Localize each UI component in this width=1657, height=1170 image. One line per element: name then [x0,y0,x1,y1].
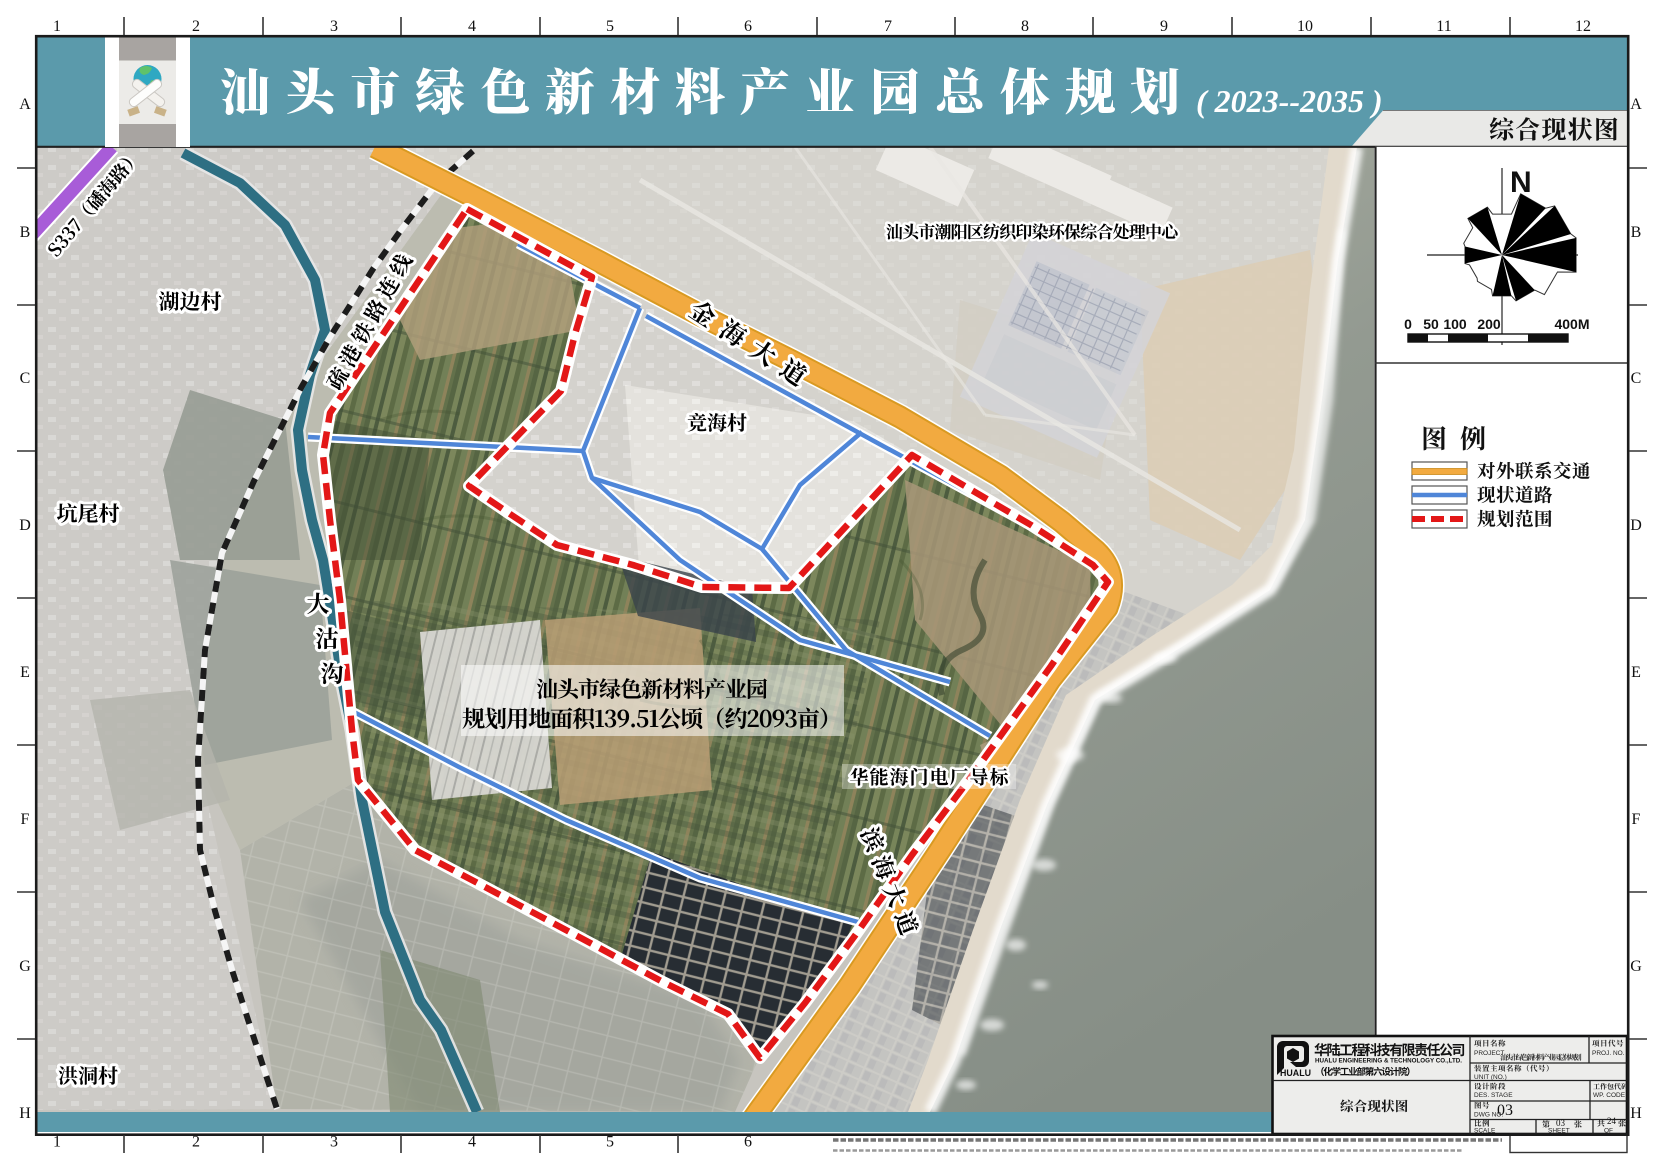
svg-text:4: 4 [468,1134,476,1151]
svg-text:200: 200 [1477,316,1501,332]
svg-text:12: 12 [1575,18,1591,35]
svg-text:4: 4 [468,18,476,35]
svg-text:3: 3 [330,1134,338,1151]
svg-text:3: 3 [330,18,338,35]
svg-text:2: 2 [192,1134,200,1151]
svg-text:100: 100 [1443,316,1467,332]
svg-text:WP. CODE: WP. CODE [1593,1092,1626,1099]
svg-text:11: 11 [1436,18,1451,35]
svg-text:G: G [19,958,31,975]
svg-text:5: 5 [606,18,614,35]
svg-text:N: N [1510,166,1532,199]
svg-text:B: B [20,224,31,241]
svg-text:10: 10 [1297,18,1313,35]
svg-text:( 2023--2035 ): ( 2023--2035 ) [1196,83,1383,119]
svg-text:HUALU: HUALU [1280,1068,1311,1079]
svg-text:UNIT (NO.): UNIT (NO.) [1474,1074,1507,1081]
svg-text:8: 8 [1021,18,1029,35]
svg-text:400M: 400M [1554,316,1589,332]
svg-text:F: F [1632,811,1641,828]
svg-text:2: 2 [192,18,200,35]
svg-text:A: A [19,96,31,113]
svg-text:24: 24 [1607,1116,1617,1126]
svg-text:HUALU ENGINEERING & TECHNOLOGY: HUALU ENGINEERING & TECHNOLOGY CO.,LTD. [1315,1058,1462,1065]
svg-text:C: C [1631,370,1642,387]
svg-text:D: D [19,517,31,534]
svg-text:5: 5 [606,1134,614,1151]
svg-text:0: 0 [1404,316,1412,332]
svg-text:PROJECT: PROJECT [1474,1050,1504,1057]
svg-text:03: 03 [1556,1118,1566,1128]
svg-text:C: C [20,370,31,387]
svg-text:50: 50 [1423,316,1439,332]
svg-text:6: 6 [744,18,752,35]
svg-text:D: D [1630,517,1642,534]
svg-text:1: 1 [53,1134,61,1151]
svg-text:DES. STAGE: DES. STAGE [1474,1092,1513,1099]
svg-text:1: 1 [53,18,61,35]
svg-text:E: E [20,664,30,681]
svg-text:F: F [21,811,30,828]
svg-text:PROJ. NO.: PROJ. NO. [1592,1050,1625,1057]
svg-text:9: 9 [1160,18,1168,35]
svg-text:B: B [1631,224,1642,241]
svg-text:A: A [1630,96,1642,113]
svg-text:G: G [1630,958,1642,975]
svg-text:H: H [19,1105,31,1122]
svg-text:6: 6 [744,1134,752,1151]
svg-text:03: 03 [1497,1102,1513,1119]
svg-text:E: E [1631,664,1641,681]
svg-text:7: 7 [884,18,892,35]
svg-text:H: H [1630,1105,1642,1122]
